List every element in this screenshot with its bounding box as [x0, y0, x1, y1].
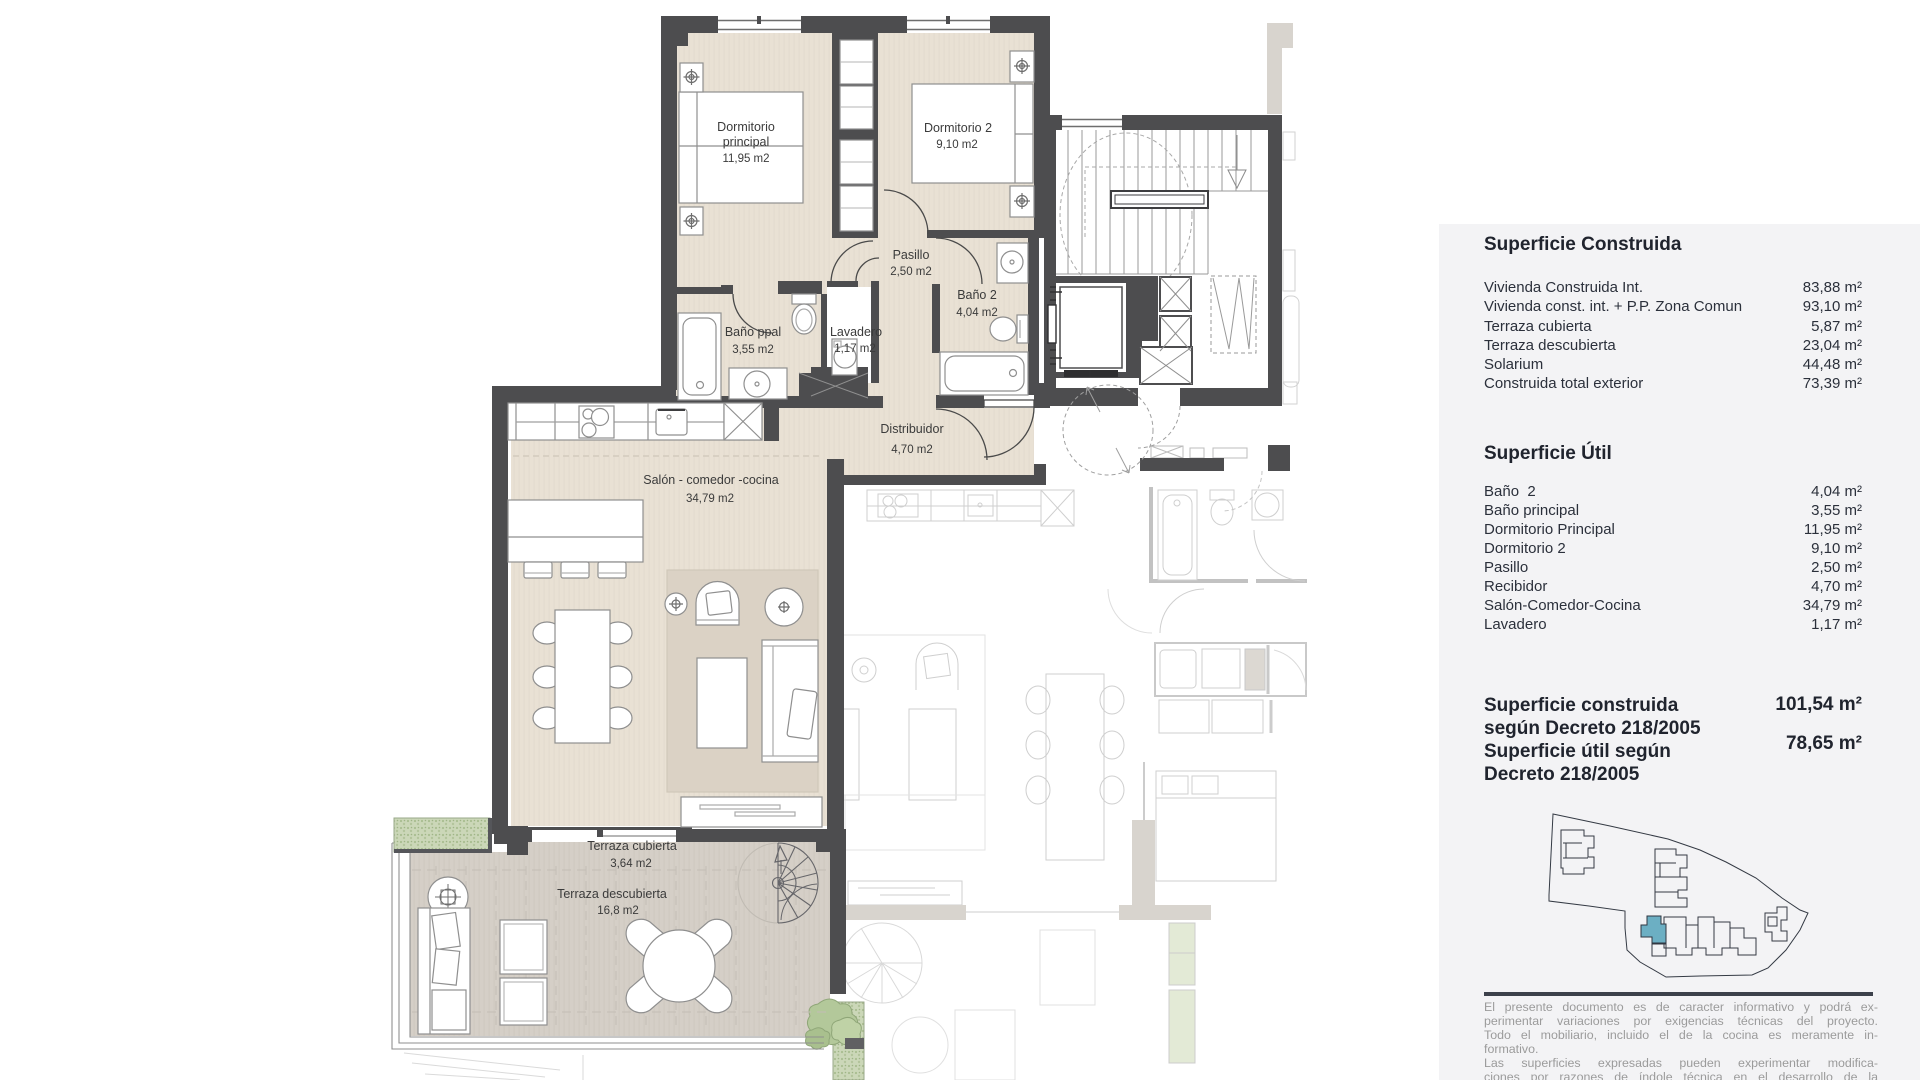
svg-text:Baño ppal: Baño ppal	[725, 325, 781, 339]
svg-text:4,04 m2: 4,04 m2	[956, 307, 998, 319]
svg-text:4,70 m2: 4,70 m2	[891, 444, 933, 456]
svg-text:Baño 2: Baño 2	[957, 288, 997, 302]
svg-text:Lavadero: Lavadero	[830, 325, 882, 339]
svg-text:1,17 m2: 1,17 m2	[834, 343, 876, 355]
svg-text:Salón - comedor -cocina: Salón - comedor -cocina	[643, 473, 779, 487]
svg-text:2,50 m2: 2,50 m2	[890, 266, 932, 278]
svg-text:Terraza cubierta: Terraza cubierta	[587, 839, 677, 853]
svg-text:9,10 m2: 9,10 m2	[936, 139, 978, 151]
svg-text:16,8 m2: 16,8 m2	[597, 905, 639, 917]
svg-text:Dormitorio 2: Dormitorio 2	[924, 121, 992, 135]
svg-text:Terraza descubierta: Terraza descubierta	[557, 887, 667, 901]
svg-text:11,95 m2: 11,95 m2	[722, 153, 769, 165]
svg-text:3,55 m2: 3,55 m2	[732, 344, 774, 356]
svg-text:34,79 m2: 34,79 m2	[686, 493, 734, 505]
svg-text:3,64 m2: 3,64 m2	[610, 858, 652, 870]
svg-text:Pasillo: Pasillo	[893, 248, 930, 262]
svg-text:Distribuidor: Distribuidor	[880, 422, 943, 436]
svg-text:principal: principal	[723, 135, 770, 149]
svg-text:Dormitorio: Dormitorio	[717, 120, 775, 134]
